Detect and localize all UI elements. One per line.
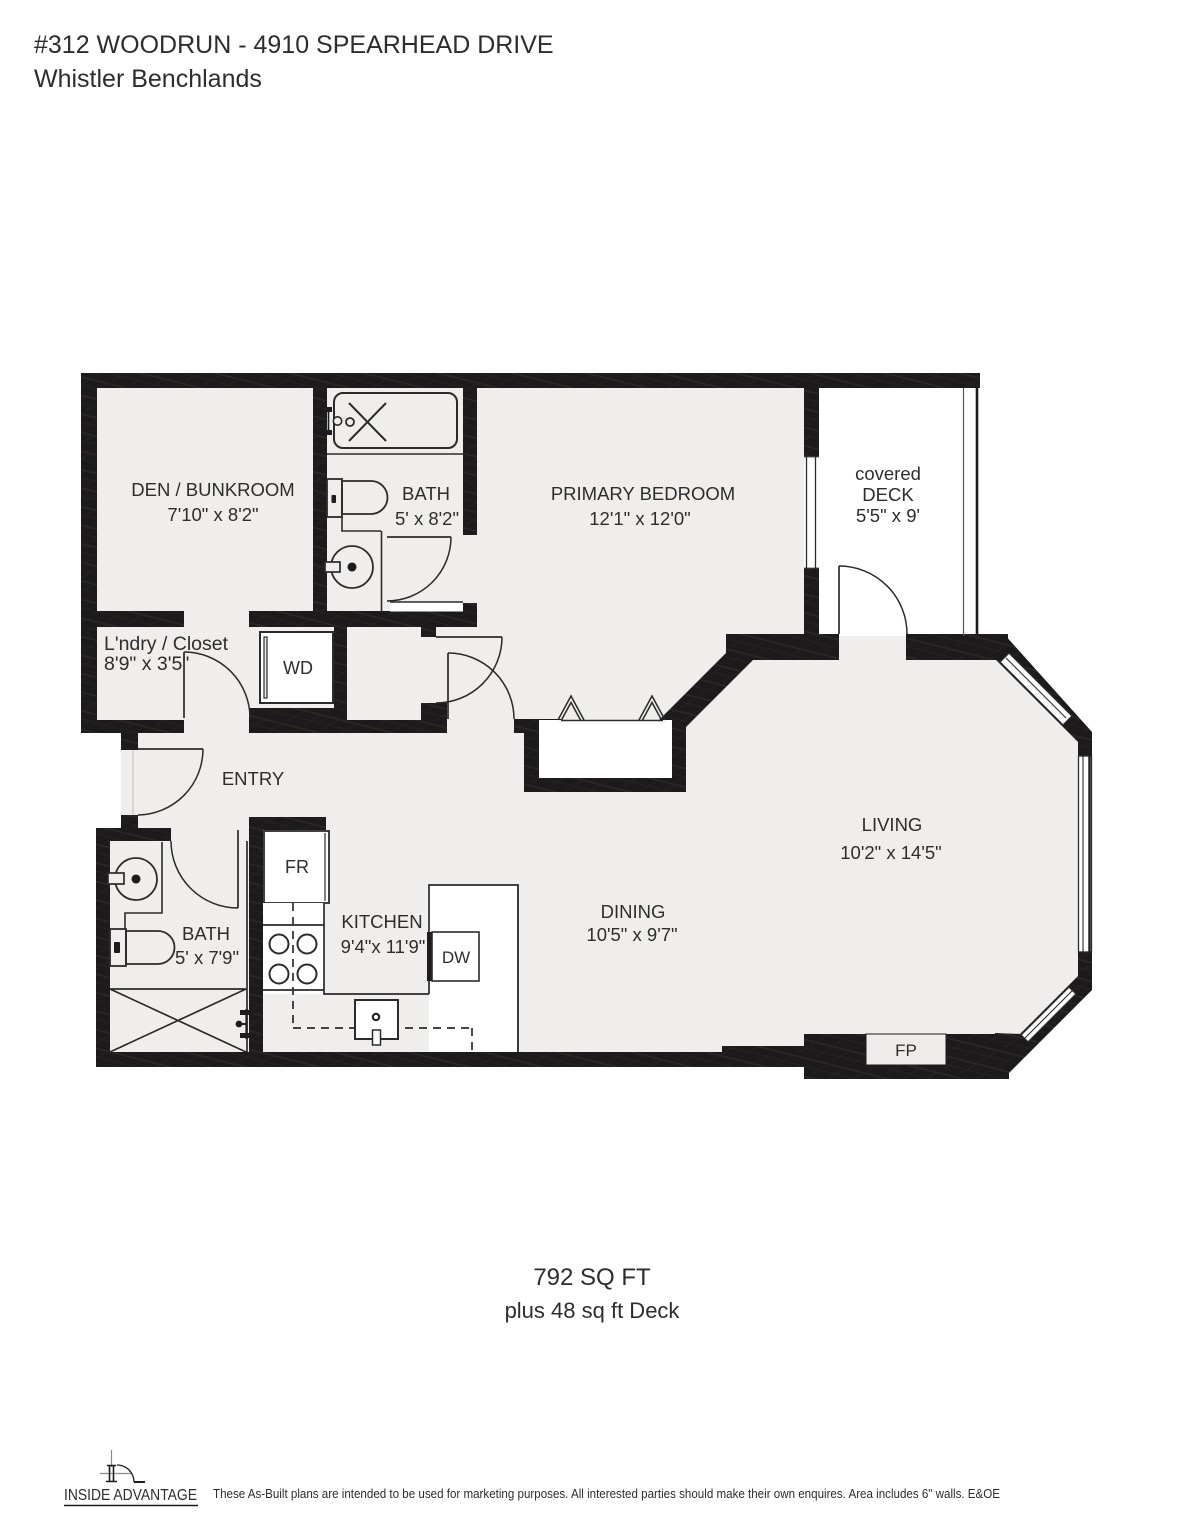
- svg-text:DECK: DECK: [862, 484, 914, 505]
- svg-text:covered: covered: [855, 463, 921, 484]
- svg-text:PRIMARY BEDROOM: PRIMARY BEDROOM: [551, 483, 735, 504]
- svg-text:FP: FP: [895, 1041, 917, 1060]
- svg-text:12'1" x 12'0": 12'1" x 12'0": [589, 508, 690, 529]
- svg-text:BATH: BATH: [182, 923, 230, 944]
- svg-text:LIVING: LIVING: [862, 814, 923, 835]
- svg-text:5'5" x 9': 5'5" x 9': [856, 505, 920, 526]
- svg-text:These As-Built plans are inten: These As-Built plans are intended to be …: [213, 1486, 1000, 1501]
- svg-text:5' x 8'2": 5' x 8'2": [395, 508, 459, 529]
- svg-text:BATH: BATH: [402, 483, 450, 504]
- svg-text:INSIDE ADVANTAGE: INSIDE ADVANTAGE: [64, 1487, 197, 1504]
- svg-text:DEN / BUNKROOM: DEN / BUNKROOM: [131, 479, 294, 500]
- svg-text:10'5" x 9'7": 10'5" x 9'7": [586, 924, 677, 945]
- svg-text:L'ndry / Closet: L'ndry / Closet: [104, 633, 229, 655]
- svg-text:792 SQ FT: 792 SQ FT: [533, 1264, 651, 1291]
- svg-text:KITCHEN: KITCHEN: [341, 911, 422, 932]
- svg-text:WD: WD: [283, 658, 313, 678]
- svg-text:ENTRY: ENTRY: [222, 768, 284, 789]
- svg-text:DW: DW: [442, 948, 470, 967]
- svg-text:FR: FR: [285, 857, 309, 877]
- svg-text:#312 WOODRUN - 4910 SPEARHEAD: #312 WOODRUN - 4910 SPEARHEAD DRIVE: [34, 31, 554, 59]
- svg-text:DINING: DINING: [601, 901, 666, 922]
- svg-text:plus 48 sq ft Deck: plus 48 sq ft Deck: [505, 1298, 681, 1323]
- svg-text:10'2" x 14'5": 10'2" x 14'5": [840, 842, 941, 863]
- svg-text:8'9" x 3'5": 8'9" x 3'5": [104, 653, 189, 675]
- svg-text:7'10" x 8'2": 7'10" x 8'2": [167, 504, 258, 525]
- svg-text:Whistler Benchlands: Whistler Benchlands: [34, 65, 262, 93]
- svg-text:5' x 7'9": 5' x 7'9": [175, 947, 239, 968]
- svg-text:9'4"x 11'9": 9'4"x 11'9": [341, 936, 426, 957]
